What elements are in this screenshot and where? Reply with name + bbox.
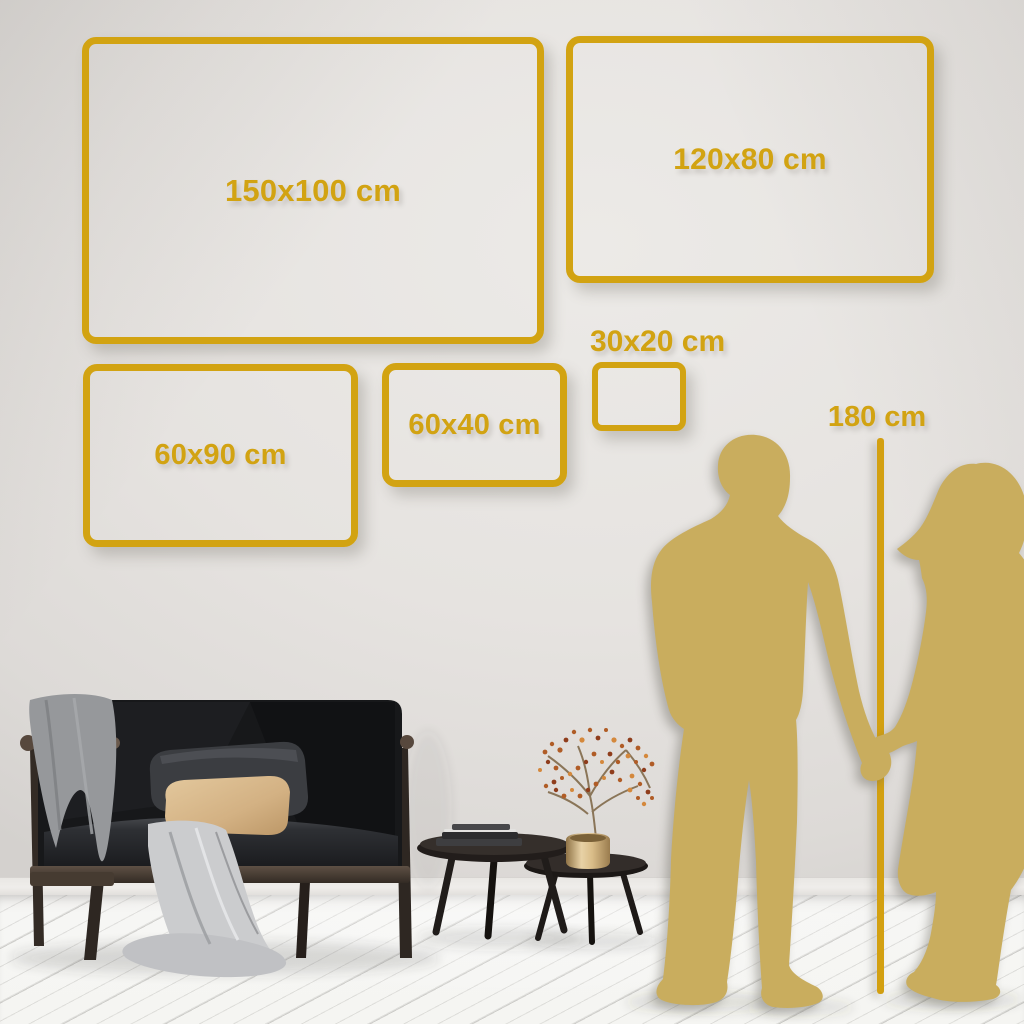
berry-branch: [538, 728, 654, 838]
vase-opening: [570, 834, 606, 842]
brass-vase: [566, 833, 610, 869]
table-leg: [622, 870, 640, 932]
couple-silhouette: [651, 435, 1024, 1008]
armrest-knob: [400, 735, 414, 749]
interior-scene: [0, 0, 1024, 1024]
man-silhouette: [651, 435, 891, 1008]
table-leg: [488, 860, 494, 936]
table-leg: [590, 874, 592, 942]
sofa: [20, 694, 414, 977]
size-guide-poster: 150x100 cm 120x80 cm 60x90 cm 60x40 cm 3…: [0, 0, 1024, 1024]
coffee-table-large: [417, 824, 571, 936]
woman-silhouette: [870, 463, 1024, 1002]
branch-stems: [548, 746, 650, 838]
sofa-side-rail: [30, 872, 114, 886]
